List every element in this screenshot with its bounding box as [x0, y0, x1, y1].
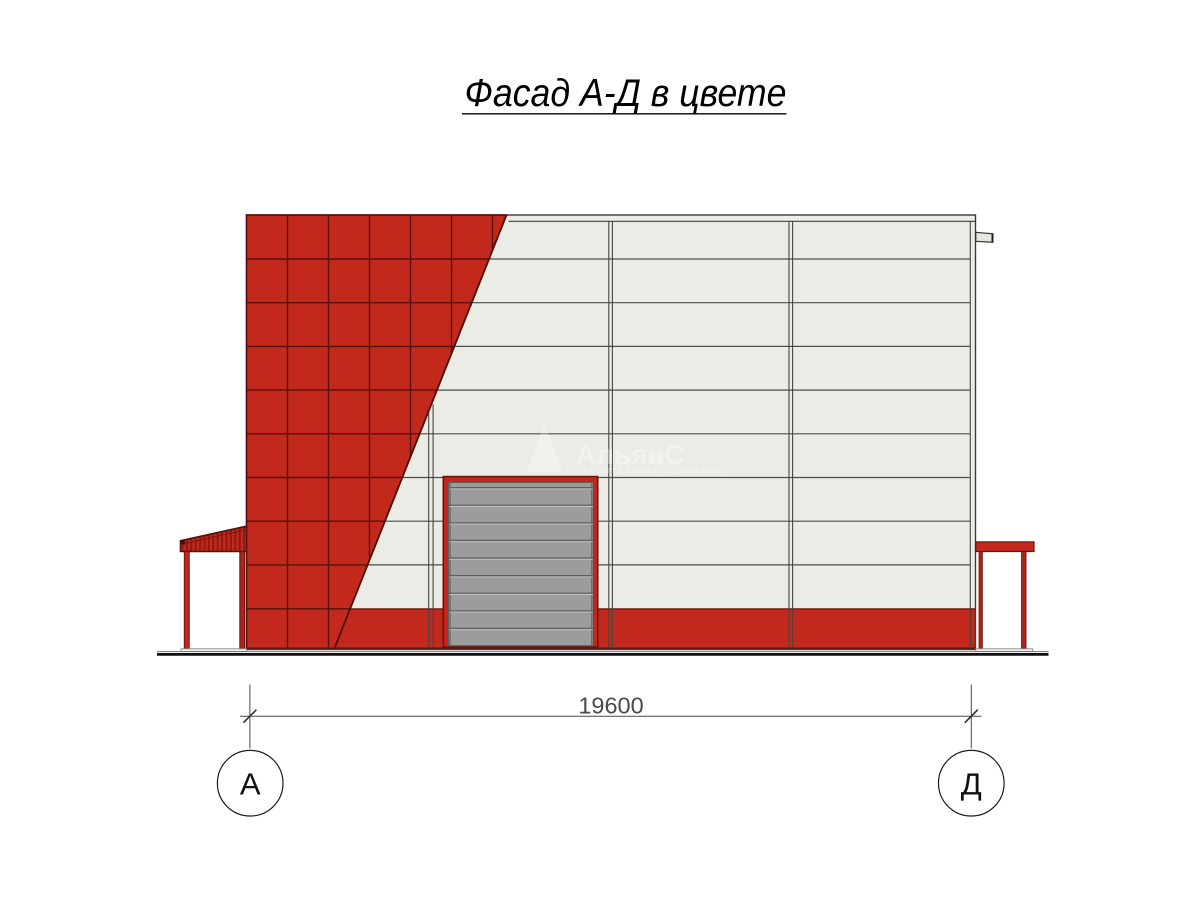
- svg-text:Фасад А-Д в цвете: Фасад А-Д в цвете: [465, 72, 787, 115]
- svg-text:Д: Д: [961, 766, 982, 801]
- svg-text:СТРОИТЕЛЬНАЯ КОМПАНИЯ: СТРОИТЕЛЬНАЯ КОМПАНИЯ: [576, 466, 724, 475]
- svg-text:А: А: [240, 766, 261, 801]
- svg-text:19600: 19600: [578, 693, 643, 719]
